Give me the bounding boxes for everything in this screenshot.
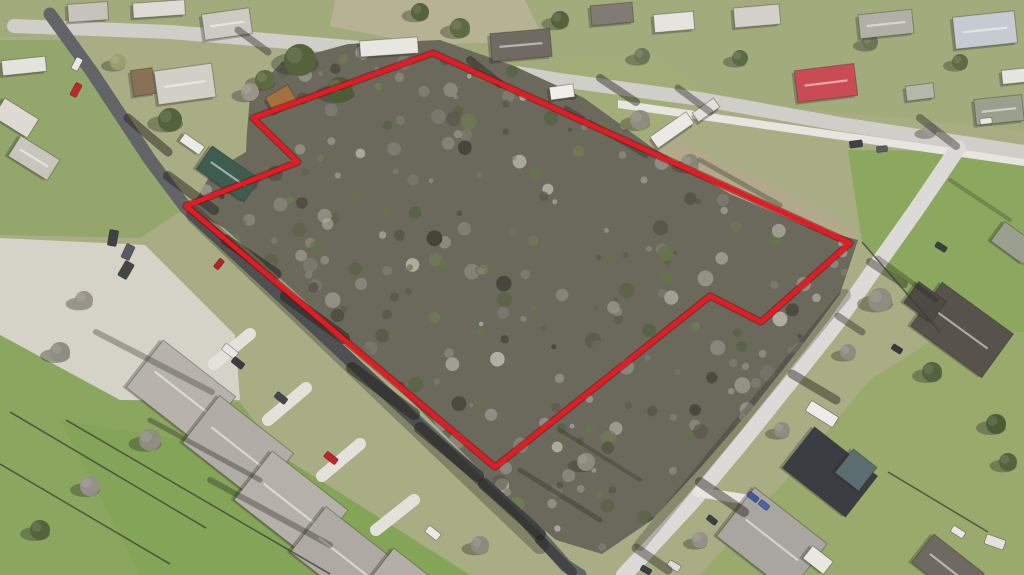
tree [831,344,856,362]
tree-shadow [540,540,572,572]
house [487,28,552,63]
house [971,95,1024,128]
house [730,4,781,30]
vehicle [876,145,888,152]
house [64,2,108,25]
vehicle [891,344,904,355]
house [650,11,695,35]
tree [462,536,490,555]
house [950,11,1018,52]
tree [232,83,260,102]
vehicle [640,565,653,575]
aerial-photo [0,0,1024,575]
house [587,2,634,28]
vehicle [706,514,718,526]
vehicle [213,258,225,270]
house [151,63,216,107]
house [176,131,205,156]
tree [765,422,790,440]
tree [683,532,708,550]
tree [101,54,126,72]
aerial-photo-stage [0,0,1024,575]
tree-shadow [792,374,836,400]
vehicle [980,117,993,124]
house [127,68,156,99]
road [268,388,306,420]
tree [147,108,183,132]
vehicle [849,140,863,149]
vehicle [425,525,442,541]
vehicle [805,400,838,427]
house [998,68,1024,87]
road [376,500,414,530]
